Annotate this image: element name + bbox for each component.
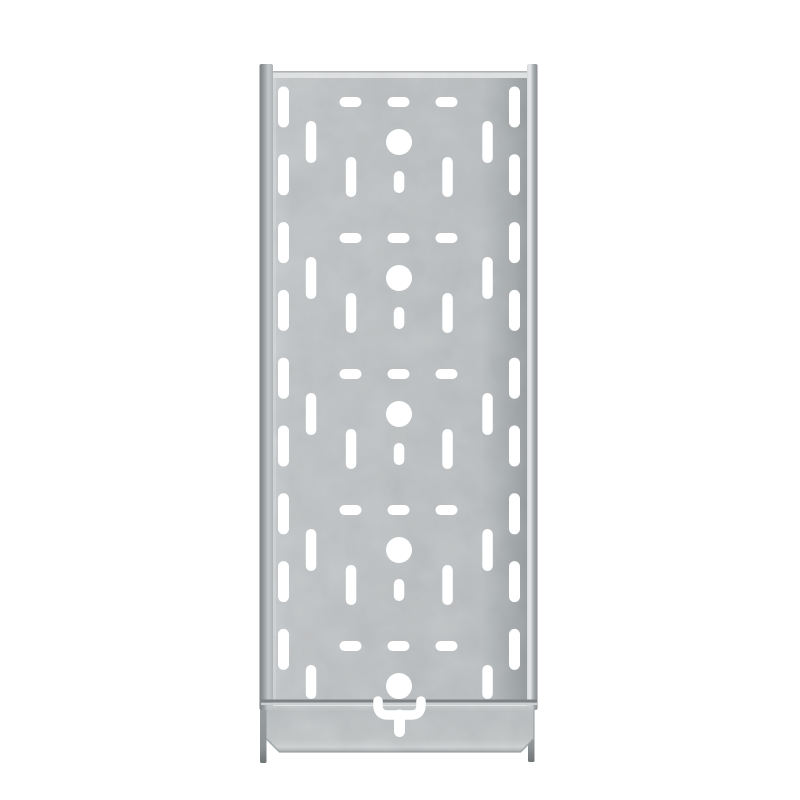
edge-perforation-slot bbox=[509, 629, 520, 670]
edge-perforation-slot bbox=[278, 629, 289, 670]
tray-right-rail bbox=[527, 64, 538, 710]
dash-perforation bbox=[388, 369, 410, 379]
centre-tail-slot bbox=[394, 171, 405, 193]
centre-tail-slot bbox=[394, 443, 405, 465]
fixing-hole bbox=[386, 129, 412, 155]
inner-perforation-slot bbox=[482, 529, 493, 571]
dash-perforation bbox=[388, 97, 410, 107]
edge-perforation-slot bbox=[509, 154, 520, 195]
tray-seam-light-line bbox=[261, 703, 537, 705]
dash-perforation bbox=[436, 641, 458, 651]
fixing-hole bbox=[386, 537, 412, 563]
edge-perforation-slot bbox=[278, 87, 289, 128]
cable-tray-illustration bbox=[0, 0, 800, 800]
inner-perforation-slot bbox=[306, 665, 317, 699]
edge-perforation-slot bbox=[278, 290, 289, 331]
mid-perforation-slot bbox=[442, 429, 453, 469]
edge-perforation-slot bbox=[509, 561, 520, 602]
centre-tail-slot bbox=[394, 307, 405, 329]
mid-perforation-slot bbox=[442, 157, 453, 197]
product-image-canvas bbox=[0, 0, 800, 800]
dash-perforation bbox=[340, 505, 362, 515]
inner-perforation-slot bbox=[306, 393, 317, 435]
dash-perforation bbox=[388, 233, 410, 243]
centre-tail-slot bbox=[394, 579, 405, 601]
fixing-hole bbox=[386, 401, 412, 427]
fixing-hole bbox=[386, 265, 412, 291]
inner-perforation-slot bbox=[482, 665, 493, 699]
dash-perforation bbox=[436, 97, 458, 107]
mid-perforation-slot bbox=[442, 565, 453, 605]
edge-perforation-slot bbox=[509, 493, 520, 534]
edge-perforation-slot bbox=[509, 426, 520, 467]
tray-seam-dark-line bbox=[261, 700, 537, 703]
dash-perforation bbox=[436, 505, 458, 515]
dash-perforation bbox=[388, 641, 410, 651]
dash-perforation bbox=[436, 233, 458, 243]
dash-perforation bbox=[340, 641, 362, 651]
edge-perforation-slot bbox=[278, 358, 289, 399]
mid-perforation-slot bbox=[346, 293, 357, 333]
edge-perforation-slot bbox=[278, 154, 289, 195]
mid-perforation-slot bbox=[346, 565, 357, 605]
edge-perforation-slot bbox=[278, 222, 289, 263]
dash-perforation bbox=[436, 369, 458, 379]
mid-perforation-slot bbox=[346, 429, 357, 469]
inner-perforation-slot bbox=[482, 121, 493, 163]
tray-left-rail bbox=[260, 64, 274, 710]
edge-perforation-slot bbox=[278, 493, 289, 534]
inner-perforation-slot bbox=[306, 529, 317, 571]
edge-perforation-slot bbox=[509, 87, 520, 128]
inner-perforation-slot bbox=[482, 257, 493, 299]
edge-perforation-slot bbox=[509, 358, 520, 399]
dash-perforation bbox=[340, 97, 362, 107]
edge-perforation-slot bbox=[278, 426, 289, 467]
dash-perforation bbox=[340, 369, 362, 379]
dash-perforation bbox=[388, 505, 410, 515]
edge-perforation-slot bbox=[509, 222, 520, 263]
mid-perforation-slot bbox=[442, 293, 453, 333]
inner-perforation-slot bbox=[482, 393, 493, 435]
inner-perforation-slot bbox=[306, 121, 317, 163]
mid-perforation-slot bbox=[346, 157, 357, 197]
dash-perforation bbox=[340, 233, 362, 243]
inner-perforation-slot bbox=[306, 257, 317, 299]
edge-perforation-slot bbox=[278, 561, 289, 602]
edge-perforation-slot bbox=[509, 290, 520, 331]
fixing-hole bbox=[386, 673, 412, 699]
